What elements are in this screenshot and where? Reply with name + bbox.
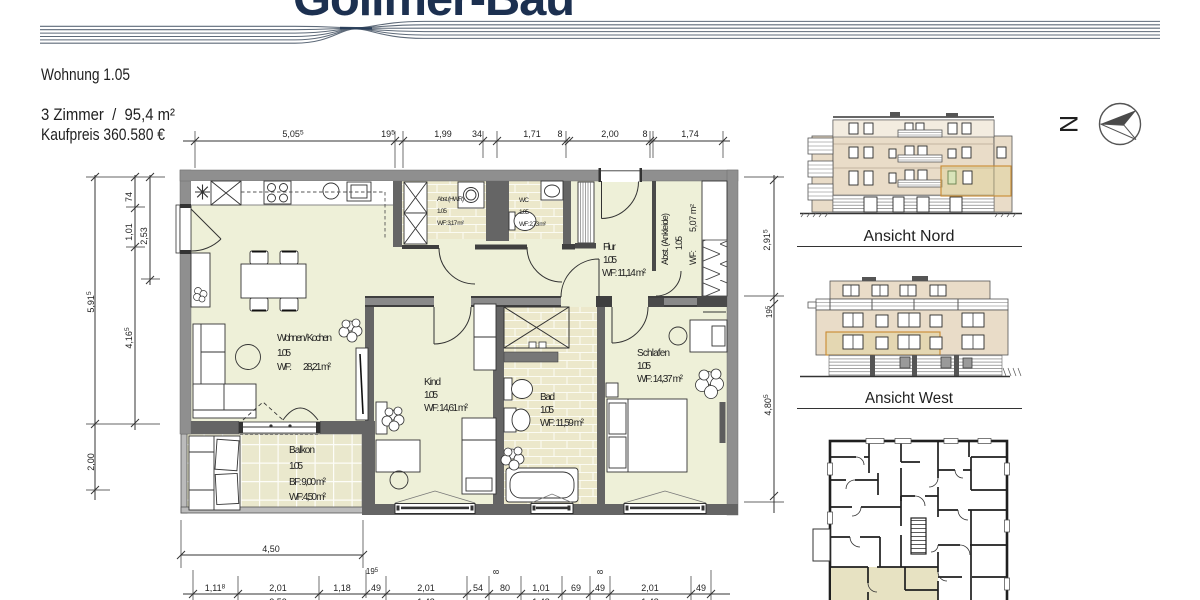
svg-text:3 Zimmer / 95,4 m²: 3 Zimmer / 95,4 m² [41,105,175,124]
svg-text:Balkon: Balkon [289,445,315,456]
svg-text:1.05: 1.05 [289,461,303,472]
svg-text:2,53: 2,53 [139,227,149,245]
svg-text:Ansicht Nord: Ansicht Nord [864,228,955,245]
svg-text:2,00: 2,00 [601,129,619,139]
svg-text:74: 74 [124,192,134,202]
svg-text:Ansicht West: Ansicht West [865,390,954,407]
svg-text:Flur: Flur [603,242,617,253]
svg-text:WC: WC [519,197,529,204]
svg-text:8: 8 [557,129,562,139]
svg-text:Kaufpreis 360.580 €: Kaufpreis 360.580 € [41,125,165,144]
svg-text:8: 8 [492,569,501,574]
svg-text:4,50: 4,50 [262,544,280,554]
svg-text:Kind: Kind [424,377,441,388]
svg-text:WF: 14,37 m²: WF: 14,37 m² [637,374,684,385]
svg-text:WF: 2,73 m²: WF: 2,73 m² [519,221,547,228]
svg-text:1,01: 1,01 [124,223,134,241]
svg-text:BF: 9,00 m²: BF: 9,00 m² [289,477,327,488]
svg-text:54: 54 [473,583,483,593]
svg-text:1.05: 1.05 [674,236,684,250]
svg-text:Gollmer-Bau: Gollmer-Bau [293,0,574,26]
svg-text:1,18: 1,18 [333,583,351,593]
svg-text:WF: 14,61 m²: WF: 14,61 m² [424,403,469,414]
svg-text:WF: 11,14 m²: WF: 11,14 m² [602,268,647,279]
svg-text:2,01: 2,01 [269,583,287,593]
svg-text:Abst. (Ankleide): Abst. (Ankleide) [660,213,670,265]
svg-text:34: 34 [472,129,482,139]
svg-text:Schlafen: Schlafen [637,348,670,359]
svg-text:69: 69 [571,583,581,593]
svg-text:WF:: WF: [688,250,698,265]
svg-text:WF: 4,50 m²: WF: 4,50 m² [289,492,327,503]
svg-text:1.05: 1.05 [437,208,447,215]
svg-text:WF: 11,59 m²: WF: 11,59 m² [540,418,585,429]
svg-text:8: 8 [596,569,605,574]
svg-text:1.05: 1.05 [424,390,438,401]
svg-text:80: 80 [500,583,510,593]
svg-text:28,21 m²: 28,21 m² [303,362,332,373]
svg-text:1,01: 1,01 [532,583,550,593]
svg-text:1.05: 1.05 [277,348,291,359]
svg-text:49: 49 [371,583,381,593]
svg-text:2,00: 2,00 [86,453,96,471]
svg-text:Abst. (HWR): Abst. (HWR) [437,196,464,203]
svg-text:8: 8 [642,129,647,139]
svg-text:49: 49 [696,583,706,593]
svg-text:49: 49 [595,583,605,593]
svg-text:2,01: 2,01 [417,583,435,593]
svg-text:N: N [1056,115,1084,133]
svg-text:1,99: 1,99 [434,129,452,139]
svg-text:1,74: 1,74 [681,129,699,139]
svg-text:1.05: 1.05 [603,255,617,266]
svg-text:WF: 3,17 m²: WF: 3,17 m² [437,220,465,227]
svg-text:1,71: 1,71 [523,129,541,139]
svg-text:WF:: WF: [277,362,292,373]
svg-text:Wohnen / Kochen: Wohnen / Kochen [277,333,332,344]
svg-text:1.05: 1.05 [519,209,529,216]
svg-text:1.05: 1.05 [637,361,651,372]
svg-text:1.05: 1.05 [540,405,554,416]
svg-text:Bad: Bad [540,392,555,403]
svg-text:5,07 m²: 5,07 m² [688,204,698,232]
svg-text:Wohnung 1.05: Wohnung 1.05 [41,65,130,84]
svg-text:2,01: 2,01 [641,583,659,593]
